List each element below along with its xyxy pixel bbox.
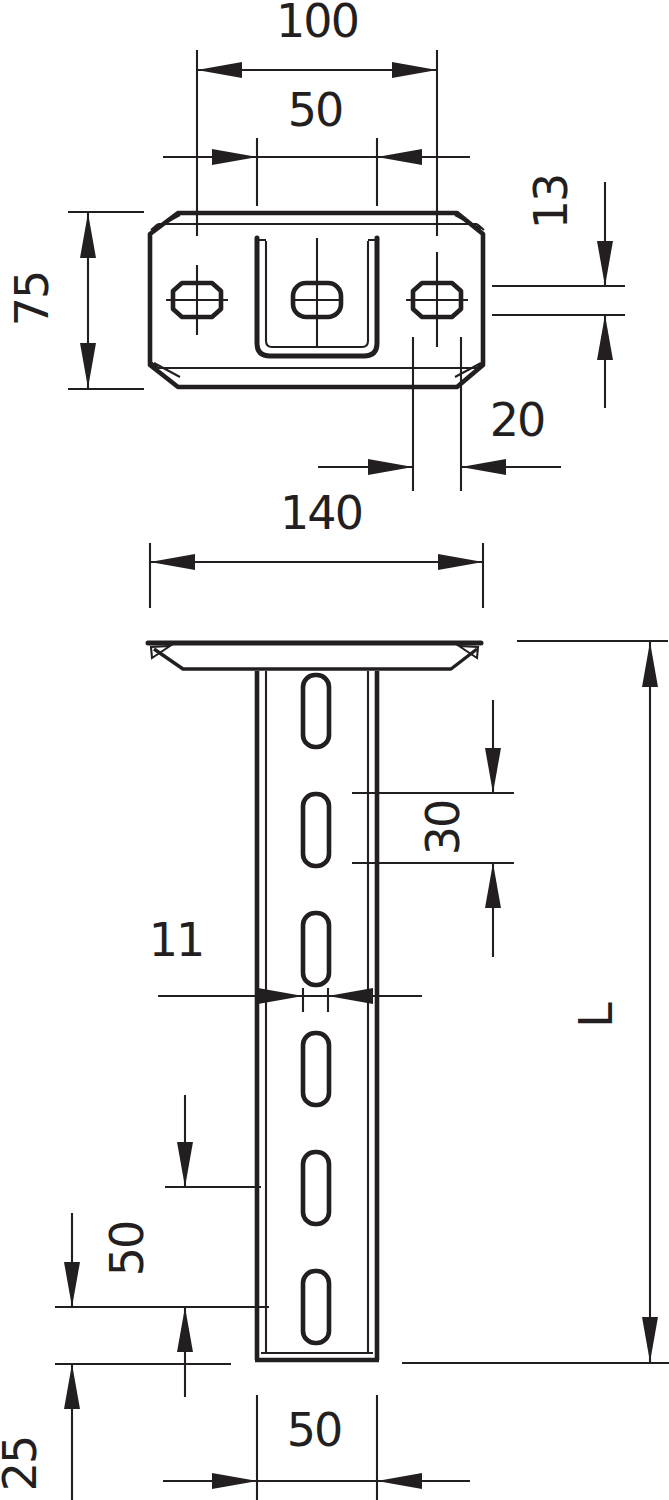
- dimension-channel-width: 50: [163, 83, 470, 206]
- post-inner-wall-lines: [261, 671, 373, 1353]
- arrowhead: [212, 1473, 257, 1489]
- dim-label-50-pitch: 50: [100, 1222, 154, 1277]
- dim-label-30: 30: [416, 801, 470, 856]
- arrowhead: [177, 1142, 193, 1187]
- web-slot-1: [303, 675, 329, 747]
- dim-label-L: L: [569, 1002, 623, 1028]
- dim-L-lines: [402, 641, 669, 1363]
- arrowhead: [64, 1364, 80, 1409]
- dim-label-50-bottom: 50: [287, 1403, 342, 1457]
- dimension-plate-depth: 75: [5, 212, 144, 389]
- arrowhead: [150, 554, 195, 570]
- arrowhead: [197, 62, 242, 78]
- dimension-side-slot-height: 13: [492, 175, 625, 408]
- arrowhead: [438, 554, 483, 570]
- dim-11-lines: [158, 988, 422, 1012]
- dimension-overall-length: L: [402, 641, 669, 1363]
- top-view: 100 50 75 13 20: [5, 0, 625, 491]
- arrowhead: [461, 459, 506, 475]
- arrowhead: [328, 988, 373, 1004]
- web-slot-2: [303, 794, 329, 866]
- head-plate-bottom-fold-line: [151, 362, 484, 377]
- arrowhead: [642, 1317, 658, 1362]
- dimension-web-hole-width: 11: [149, 913, 422, 1012]
- arrowhead: [377, 149, 422, 165]
- dimension-web-hole-pitch: 50: [55, 1095, 269, 1397]
- web-slot-4: [303, 1033, 329, 1105]
- web-slot-3: [303, 913, 329, 985]
- dimension-profile-width: 50: [163, 1395, 470, 1500]
- dim-label-20: 20: [490, 393, 545, 447]
- front-view: 140 30 11: [0, 486, 669, 1500]
- head-plate-top-fold-line: [151, 215, 484, 230]
- arrowhead: [485, 748, 501, 793]
- dim-label-140: 140: [280, 486, 362, 540]
- dimension-plate-width: 140: [150, 486, 483, 608]
- arrowhead: [64, 1262, 80, 1307]
- flange-underside: [154, 649, 477, 669]
- drawing-canvas: 100 50 75 13 20: [0, 0, 669, 1500]
- dim-50-lines: [163, 138, 470, 206]
- arrowhead: [177, 1307, 193, 1352]
- arrowhead: [597, 241, 613, 286]
- arrowhead: [392, 62, 437, 78]
- dim-label-11: 11: [149, 913, 204, 967]
- dim-140-lines: [150, 543, 483, 608]
- arrowhead: [377, 1473, 422, 1489]
- arrowhead: [597, 315, 613, 360]
- top-view-centerlines: [166, 238, 468, 347]
- arrowhead: [485, 863, 501, 908]
- dim-label-13: 13: [524, 175, 578, 230]
- dim-label-75: 75: [5, 272, 59, 327]
- dimension-side-slot-length: 20: [318, 337, 561, 491]
- arrowhead: [642, 642, 658, 687]
- dim-50-pitch-lines: [55, 1095, 269, 1397]
- web-slot-6: [303, 1271, 329, 1343]
- dim-label-25: 25: [0, 1437, 47, 1492]
- arrowhead: [368, 459, 413, 475]
- web-slot-5: [303, 1152, 329, 1224]
- post-outer-walls: [255, 671, 379, 1360]
- arrowhead: [212, 149, 257, 165]
- arrowhead: [80, 343, 96, 388]
- arrowhead: [258, 988, 303, 1004]
- technical-drawing-svg: 100 50 75 13 20: [0, 0, 669, 1500]
- arrowhead: [80, 213, 96, 258]
- dim-100-lines: [197, 50, 437, 236]
- dim-label-50-top: 50: [288, 83, 343, 137]
- dim-75-lines: [68, 212, 144, 389]
- dim-label-100: 100: [276, 0, 358, 48]
